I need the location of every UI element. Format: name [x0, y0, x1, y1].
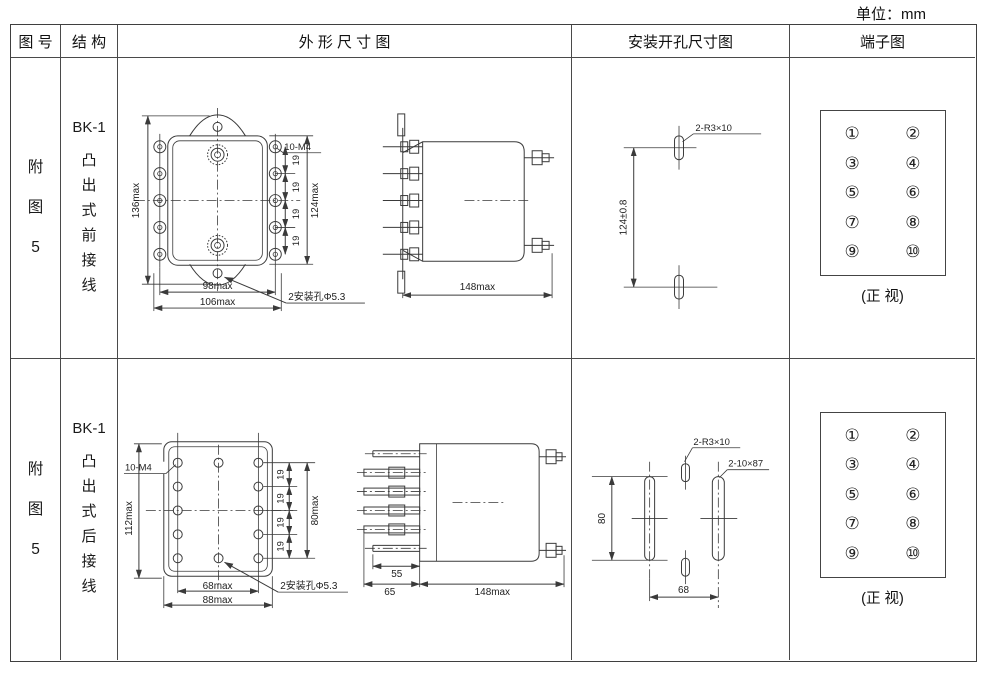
dim-88max: 88max: [203, 595, 233, 606]
front-view-dimensions: 10-M4 112max 19 19 19 19 80max: [123, 444, 348, 608]
row2-terminal-cell: ① ③ ⑤ ⑦ ⑨ ② ④ ⑥ ⑧ ⑩ (正 视): [790, 359, 975, 660]
terminal-5: ⑤: [845, 485, 860, 505]
row2-structure-text: 凸出式后接线: [81, 449, 98, 599]
dim-small-slot-spec: 2-R3×10: [693, 437, 729, 448]
dim-pitch-3: 19: [291, 208, 302, 219]
header-outline-label: 外 形 尺 寸 图: [299, 31, 391, 52]
dim-pitch-3: 19: [275, 517, 286, 528]
mounting-dimensions: 80 68 2-R3×10 2-10×87: [597, 437, 769, 601]
header-structure-label: 结 构: [72, 31, 106, 52]
dim-80max: 80max: [310, 496, 321, 526]
terminal-10: ⑩: [905, 544, 920, 564]
terminal-6: ⑥: [905, 183, 920, 203]
row1-structure: BK-1 凸出式前接线: [61, 58, 118, 359]
dim-screw-spec: 10-M4: [125, 463, 152, 474]
dim-65: 65: [384, 587, 396, 598]
terminal-3: ③: [845, 154, 860, 174]
side-view: 148max: [383, 113, 554, 297]
dim-55: 55: [391, 569, 403, 580]
mounting-drawing-rear-wiring: 80 68 2-R3×10 2-10×87: [572, 359, 789, 660]
dim-68: 68: [678, 585, 690, 596]
dim-148max: 148max: [475, 587, 510, 598]
terminal-9: ⑨: [845, 242, 860, 262]
outline-drawing-rear-wiring: 10-M4 112max 19 19 19 19 80max: [118, 359, 571, 660]
terminal-1: ①: [845, 124, 860, 144]
side-view-dimensions: 55 65 148max: [364, 533, 564, 598]
dim-pitch-1: 19: [291, 154, 302, 165]
dim-long-slot-spec: 2-10×87: [728, 459, 763, 470]
dim-pitch-2: 19: [275, 493, 286, 504]
dim-136max: 136max: [131, 182, 142, 217]
row2-fig-no: 附图5: [11, 359, 61, 660]
dim-mount-hole-note: 2安装孔Φ5.3: [288, 290, 346, 303]
terminal-diagram: ① ③ ⑤ ⑦ ⑨ ② ④ ⑥ ⑧ ⑩: [820, 412, 946, 578]
terminal-7: ⑦: [845, 213, 860, 233]
terminal-4: ④: [905, 154, 920, 174]
row1-model: BK-1: [72, 119, 105, 136]
row1-fig-no-text: 附图5: [27, 148, 45, 268]
row1-outline-cell: 136max 124max 19 19 19 19 10-M4: [118, 58, 572, 359]
rear-studs: [364, 451, 420, 552]
terminal-caption: (正 视): [861, 285, 904, 306]
header-terminal: 端子图: [790, 25, 975, 58]
dim-80: 80: [597, 512, 608, 524]
header-fig-no-label: 图 号: [18, 31, 52, 52]
header-fig-no: 图 号: [11, 25, 61, 58]
rear-screws: [539, 450, 566, 558]
mounting-slots: [592, 456, 737, 608]
terminal-left-column: ① ③ ⑤ ⑦ ⑨: [845, 124, 860, 262]
terminal-right-column: ② ④ ⑥ ⑧ ⑩: [905, 124, 920, 262]
terminal-right-column: ② ④ ⑥ ⑧ ⑩: [905, 426, 920, 564]
unit-label: 单位：mm: [856, 3, 926, 24]
row1-mounting-cell: 124±0.8 2-R3×10: [572, 58, 790, 359]
terminal-6: ⑥: [905, 485, 920, 505]
terminal-10: ⑩: [905, 242, 920, 262]
dim-pitch-4: 19: [291, 235, 302, 246]
dim-slot-spec: 2-R3×10: [695, 122, 731, 133]
terminal-1: ①: [845, 426, 860, 446]
terminal-4: ④: [905, 455, 920, 475]
row1-structure-text: 凸出式前接线: [81, 148, 98, 298]
terminal-2: ②: [905, 124, 920, 144]
terminal-5: ⑤: [845, 183, 860, 203]
dim-screw-spec: 10-M4: [284, 141, 311, 152]
dim-pitch-1: 19: [275, 469, 286, 480]
dim-pitch-4: 19: [275, 541, 286, 552]
side-view: 55 65 148max: [357, 444, 566, 598]
mounting-slots: [624, 125, 718, 308]
dim-mount-hole-note: 2安装孔Φ5.3: [280, 579, 338, 592]
header-mounting: 安装开孔尺寸图: [572, 25, 790, 58]
front-view: [146, 433, 293, 593]
dim-pitch-2: 19: [291, 181, 302, 191]
dim-68max: 68max: [203, 581, 233, 592]
row2-structure: BK-1 凸出式后接线: [61, 359, 118, 660]
row1-terminal-cell: ① ③ ⑤ ⑦ ⑨ ② ④ ⑥ ⑧ ⑩ (正 视): [790, 58, 975, 359]
mounting-drawing-front-wiring: 124±0.8 2-R3×10: [572, 58, 789, 359]
row2-fig-no-text: 附图5: [27, 450, 45, 570]
terminal-2: ②: [905, 426, 920, 446]
dim-98max: 98max: [203, 281, 233, 292]
dim-124-08: 124±0.8: [619, 199, 630, 235]
row2-outline-cell: 10-M4 112max 19 19 19 19 80max: [118, 359, 572, 660]
terminal-8: ⑧: [905, 514, 920, 534]
rear-screws: [524, 150, 554, 252]
header-mounting-label: 安装开孔尺寸图: [628, 31, 733, 52]
row2-mounting-cell: 80 68 2-R3×10 2-10×87: [572, 359, 790, 660]
header-structure: 结 构: [61, 25, 118, 58]
header-terminal-label: 端子图: [860, 31, 905, 52]
row1-fig-no: 附图5: [11, 58, 61, 359]
dim-112max: 112max: [124, 501, 135, 536]
terminal-left-column: ① ③ ⑤ ⑦ ⑨: [845, 426, 860, 564]
terminal-8: ⑧: [905, 213, 920, 233]
header-outline: 外 形 尺 寸 图: [118, 25, 572, 58]
terminal-diagram: ① ③ ⑤ ⑦ ⑨ ② ④ ⑥ ⑧ ⑩: [820, 110, 946, 276]
terminal-3: ③: [845, 455, 860, 475]
terminal-caption: (正 视): [861, 587, 904, 608]
row2-model: BK-1: [72, 420, 105, 437]
dimension-table: 图 号 结 构 外 形 尺 寸 图 安装开孔尺寸图 端子图 附图5 BK-1 凸…: [10, 24, 977, 662]
outline-drawing-front-wiring: 136max 124max 19 19 19 19 10-M4: [118, 58, 571, 359]
dim-124max: 124max: [310, 182, 321, 217]
terminal-9: ⑨: [845, 544, 860, 564]
dim-106max: 106max: [200, 297, 235, 308]
terminal-7: ⑦: [845, 514, 860, 534]
dim-148max: 148max: [460, 282, 495, 293]
